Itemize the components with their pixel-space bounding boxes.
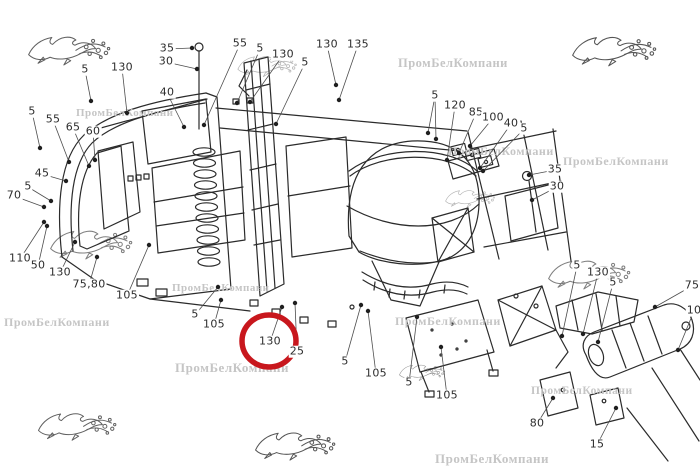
- part-number-callout: 15: [589, 439, 606, 451]
- part-number-callout: 130: [48, 267, 72, 279]
- part-number-callout: 130: [315, 39, 339, 51]
- watermark-text: ПромБелКомпани: [435, 452, 549, 465]
- part-number-callout: 100: [481, 112, 505, 124]
- parts-diagram-page: 3530513040555130513013555565604557011050…: [0, 0, 700, 468]
- part-number-callout: 5: [27, 106, 36, 118]
- mesh-screens: [152, 137, 352, 257]
- watermark-text: ПромБелКомпани: [175, 361, 289, 374]
- part-number-callout: 55: [232, 38, 249, 50]
- center-panel: [233, 57, 284, 296]
- part-number-callout: 35: [547, 164, 564, 176]
- part-number-callout: 5: [190, 309, 199, 321]
- part-number-callout: 75,80: [72, 279, 107, 291]
- gazelle-logo-icon: [48, 222, 134, 260]
- part-number-callout: 105: [364, 368, 388, 380]
- support-bracket: [432, 208, 474, 262]
- part-number-callout: 5: [404, 377, 413, 389]
- part-number-callout: 35: [159, 43, 176, 55]
- part-number-callout: 60: [85, 126, 102, 138]
- gazelle-logo-icon: [570, 28, 658, 67]
- gazelle-watermark-logo: [48, 222, 134, 264]
- watermark-text: ПромБелКомпани: [531, 386, 633, 398]
- part-number-callout: 105: [435, 390, 459, 402]
- part-number-callout: 75: [684, 280, 700, 292]
- part-number-callout: 130: [110, 62, 134, 74]
- part-number-callout: 105: [115, 290, 139, 302]
- watermark-text: ПромБелКомпани: [563, 155, 669, 167]
- gazelle-watermark-logo: [570, 28, 658, 71]
- part-number-callout: 50: [30, 260, 47, 272]
- part-number-callout: 30: [158, 56, 175, 68]
- part-number-callout: 5: [23, 181, 32, 193]
- part-number-callout: 30: [549, 181, 566, 193]
- duct-assembly: [362, 272, 468, 299]
- part-number-callout: 130: [586, 267, 610, 279]
- gazelle-watermark-logo: [253, 424, 337, 465]
- part-number-callout: 5: [519, 123, 528, 135]
- gazelle-logo-icon: [36, 405, 118, 441]
- part-number-callout: 25: [289, 346, 306, 358]
- part-number-callout: 120: [443, 100, 467, 112]
- watermark-text: ПромБелКомпани: [76, 108, 174, 119]
- part-number-callout: 40: [159, 87, 176, 99]
- part-number-callout: 10: [686, 305, 700, 317]
- gazelle-watermark-logo: [26, 28, 112, 70]
- watermark-text: ПромБелКомпани: [398, 57, 508, 70]
- part-number-callout: 40: [503, 118, 520, 130]
- part-number-callout: 5: [300, 57, 309, 69]
- part-number-callout: 110: [8, 253, 32, 265]
- gazelle-watermark-logo: [36, 405, 118, 445]
- part-number-callout: 5: [430, 90, 439, 102]
- part-number-callout: 5: [608, 277, 617, 289]
- part-number-callout: 5: [572, 260, 581, 272]
- part-number-callout: 5: [255, 43, 264, 55]
- part-number-callout: 105: [202, 319, 226, 331]
- part-number-callout: 130: [271, 49, 295, 61]
- drum-assembly: [540, 292, 700, 461]
- watermark-text: ПромБелКомпани: [395, 315, 501, 327]
- right-bracket-cluster: [498, 286, 568, 368]
- part-number-callout: 5: [340, 356, 349, 368]
- part-number-callout: 70: [6, 190, 23, 202]
- watermark-text: ПромБелКомпани: [448, 145, 554, 157]
- part-number-callout: 130: [258, 336, 282, 348]
- gazelle-logo-icon: [26, 28, 112, 66]
- watermark-text: ПромБелКомпани: [172, 283, 270, 294]
- part-number-callout: 45: [34, 168, 51, 180]
- part-number-callout: 5: [80, 64, 89, 76]
- part-number-callout: 65: [65, 122, 82, 134]
- part-number-callout: 55: [45, 114, 62, 126]
- gazelle-logo-icon: [444, 185, 496, 208]
- gazelle-logo-icon: [253, 424, 337, 461]
- part-number-callout: 80: [529, 418, 546, 430]
- part-number-callout: 135: [346, 39, 370, 51]
- gazelle-watermark-logo: [444, 185, 496, 212]
- watermark-text: ПромБелКомпани: [4, 316, 110, 328]
